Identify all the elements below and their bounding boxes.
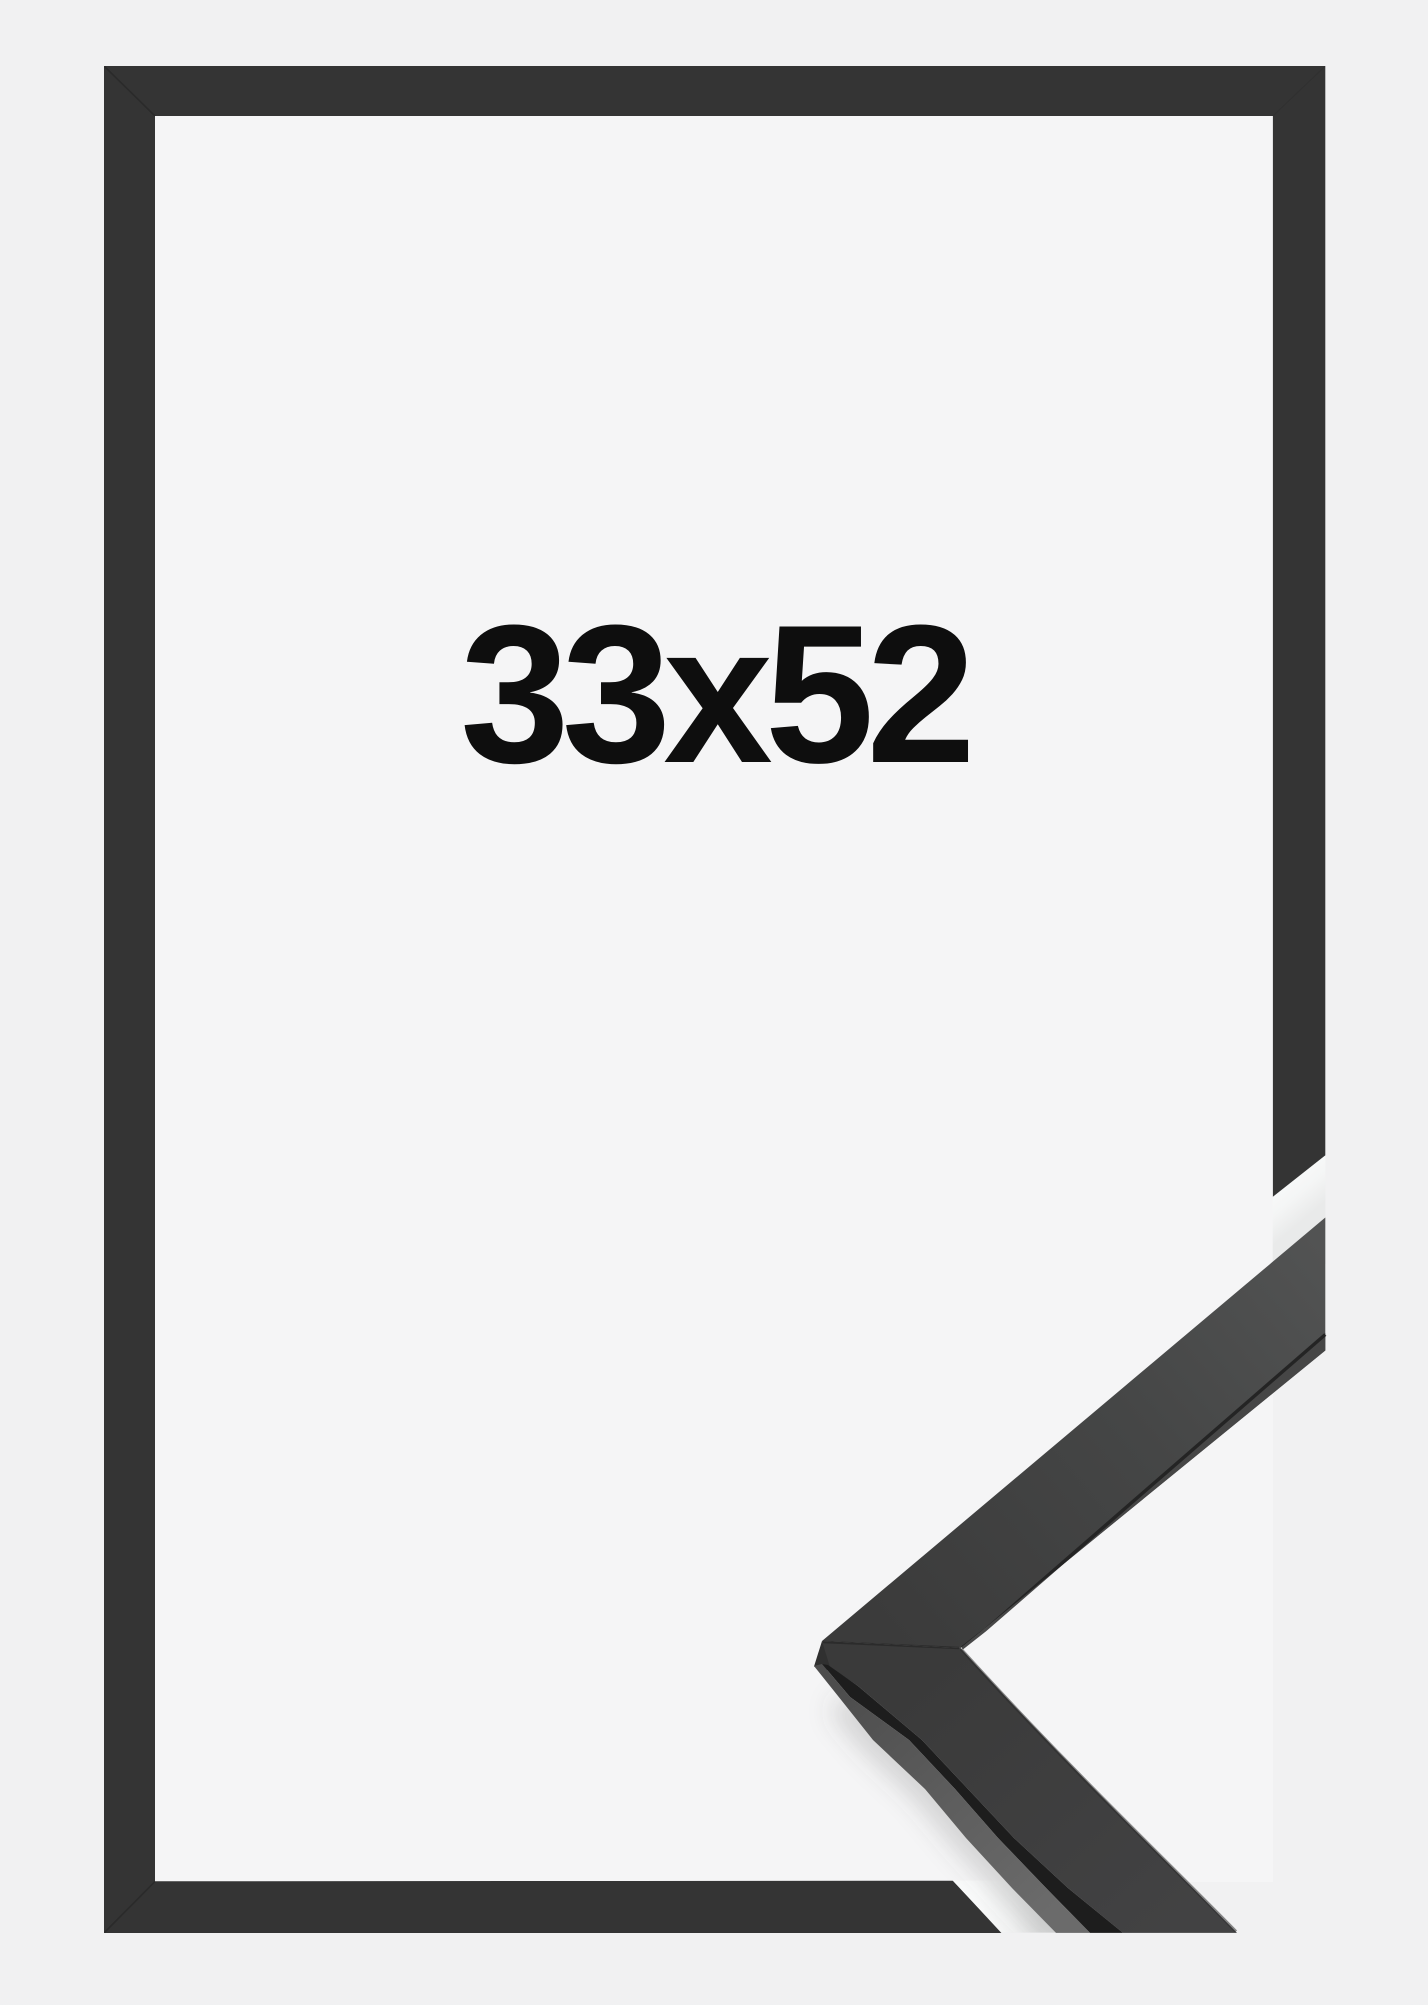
svg-text:33x52: 33x52 (460, 584, 968, 804)
